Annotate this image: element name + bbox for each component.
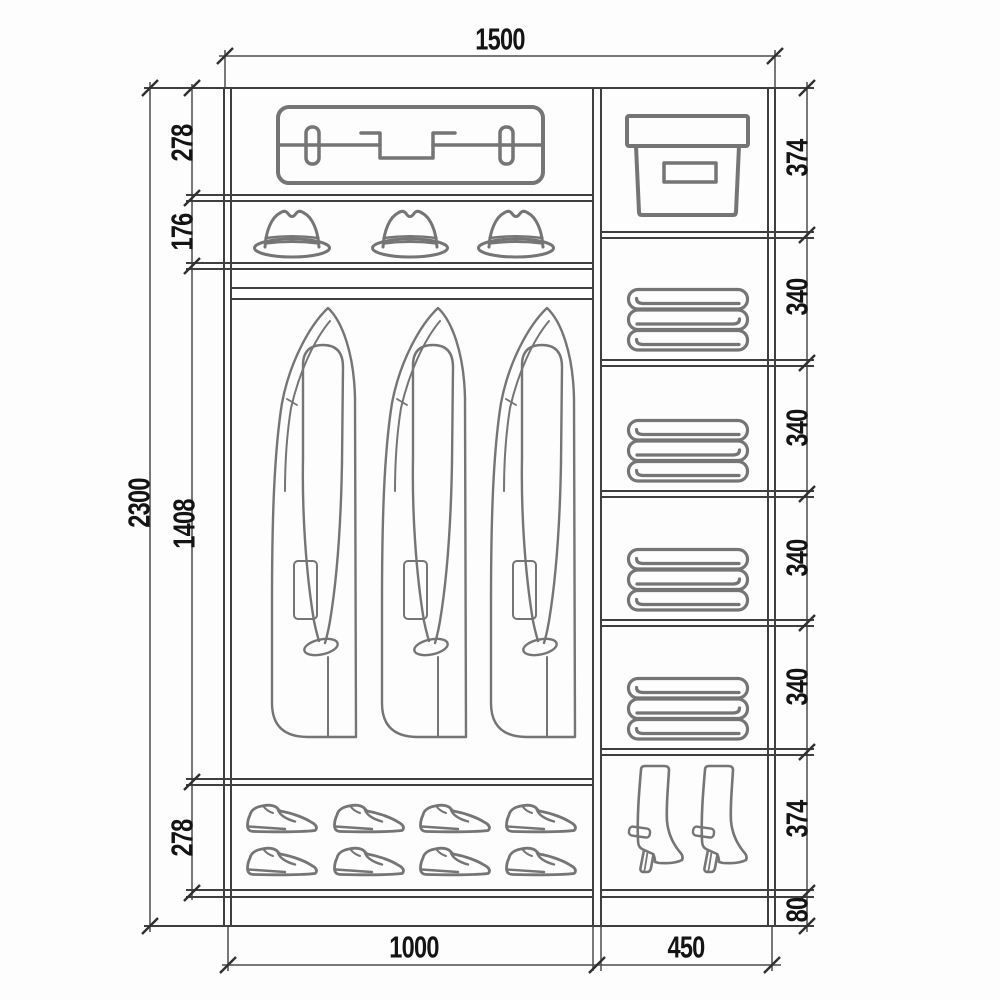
boot-icon	[628, 766, 682, 872]
boot-icon	[692, 766, 746, 872]
shoe-icon	[335, 805, 404, 832]
dim-label-left-section-2: 176	[167, 213, 198, 250]
dim-label-total-height: 2300	[124, 478, 155, 527]
dim-label-left-section-3: 1408	[169, 499, 200, 548]
shoe-icon	[248, 848, 317, 875]
shelf-right-3	[601, 491, 814, 497]
dimension-lines	[150, 50, 807, 971]
dim-label-right-section-1: 374	[782, 139, 813, 176]
shelf-right-5	[601, 749, 814, 755]
shoe-icon	[507, 848, 576, 875]
hat-icon	[373, 211, 448, 257]
dim-label-right-col-width: 450	[667, 932, 704, 963]
shelf-hanging-shoes	[186, 779, 593, 785]
folded-linen-icon	[629, 679, 748, 740]
shelf-right-4	[601, 620, 814, 626]
shoe-icon	[507, 805, 576, 832]
cabinet-right-edge	[768, 88, 775, 926]
folded-linen-icon	[629, 421, 748, 482]
dim-label-right-section-2: 340	[782, 278, 813, 315]
suitcase-icon	[278, 107, 543, 183]
dim-label-right-section-5: 340	[782, 668, 813, 705]
shoe-icon	[335, 848, 404, 875]
dim-label-right-section-3: 340	[782, 409, 813, 446]
dim-label-left-section-1: 278	[167, 124, 198, 161]
hat-icon	[479, 211, 554, 257]
coat-icon	[491, 308, 575, 737]
shoe-icon	[248, 805, 317, 832]
dim-label-plinth-height: 80	[782, 898, 813, 923]
dim-label-right-section-4: 340	[782, 539, 813, 576]
dim-label-left-col-width: 1000	[389, 932, 438, 963]
shelf-suitcase-hats	[186, 195, 593, 201]
hat-icon	[255, 211, 330, 257]
shelf-hats-hanging	[186, 263, 593, 269]
coat-icon	[382, 308, 466, 737]
shoe-icon	[421, 848, 490, 875]
dim-label-total-width: 1500	[475, 24, 524, 55]
folded-linen-icon	[629, 290, 748, 351]
folded-linen-icon	[629, 550, 748, 611]
cabinet-left-edge	[224, 88, 231, 926]
center-partition	[593, 88, 601, 926]
shoe-icon	[421, 805, 490, 832]
hanging-rod	[231, 288, 593, 299]
shelf-right-bottom	[601, 890, 814, 897]
dim-label-right-section-6: 374	[782, 800, 813, 837]
wardrobe-dimension-diagram: 1500 2300 278 176 1408 278 374 340 340 3…	[0, 0, 1000, 1000]
dim-label-left-section-4: 278	[167, 819, 198, 856]
shelf-shoes-bottom	[186, 890, 593, 897]
storage-box-icon	[627, 116, 748, 215]
shelf-right-2	[601, 360, 814, 366]
coat-icon	[272, 308, 356, 737]
shelf-right-1	[601, 232, 814, 238]
